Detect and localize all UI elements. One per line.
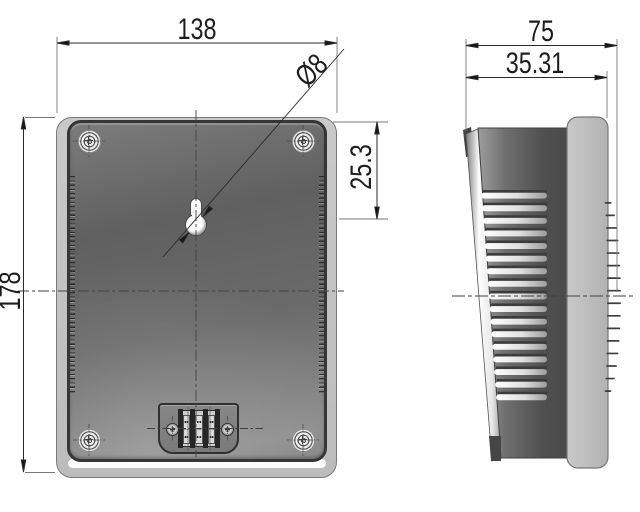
vent-slot-louver	[494, 369, 547, 375]
vent-slot-opening	[495, 354, 547, 357]
vent-slot-opening	[498, 392, 547, 395]
grille-hatch-dash	[607, 315, 621, 317]
vent-slot-opening	[489, 278, 547, 281]
vent-slot-louver	[486, 256, 547, 262]
dim-text-side-depth-body: 35.31	[500, 51, 570, 77]
vent-slot-louver	[493, 357, 547, 363]
vent-slot-opening	[493, 329, 547, 332]
vent-slot-louver	[492, 344, 547, 350]
vent-slot-opening	[486, 240, 547, 243]
vent-slot-louver	[495, 382, 547, 388]
grille-hatch-dash	[607, 265, 620, 267]
grille-hatch-dash	[606, 365, 617, 367]
grille-hatch-dash	[607, 252, 620, 254]
grille-hatch-dash	[606, 227, 617, 229]
vent-slot-opening	[491, 303, 547, 306]
grille-hatch-dash	[607, 340, 620, 342]
dim-text-back-height: 178	[0, 252, 24, 330]
vent-slot-louver	[496, 394, 547, 400]
grille-hatch-dash	[607, 290, 621, 292]
vent-slot-opening	[490, 291, 547, 294]
side-mounting-flange	[567, 117, 608, 468]
vent-slot-opening	[487, 253, 547, 256]
dim-text-keyhole-offset: 25.3	[349, 128, 375, 206]
grille-hatch-dash	[605, 202, 612, 204]
vent-slot-opening	[483, 190, 548, 193]
vent-slot-opening	[494, 341, 547, 344]
vent-slot-opening	[497, 379, 547, 382]
vent-slot-opening	[488, 266, 547, 269]
grille-hatch-dash	[607, 328, 620, 330]
vent-slot-louver	[491, 319, 548, 325]
side-view	[463, 117, 621, 468]
vent-slot-louver	[489, 294, 547, 300]
vent-slot-opening	[483, 203, 547, 206]
grille-hatch-dash	[607, 302, 621, 304]
vent-slot-louver	[481, 193, 547, 199]
vent-slot-louver	[483, 218, 547, 224]
grille-hatch-dash	[606, 215, 615, 217]
vent-slot-opening	[485, 228, 547, 231]
vent-slot-louver	[490, 306, 547, 312]
vent-slot-louver	[488, 281, 547, 287]
grille-hatch-dash	[606, 378, 615, 380]
grille-hatch-dash	[606, 353, 618, 355]
drawing-canvas: 138 178 25.3 Ø8 75 35.31	[0, 0, 640, 512]
vent-slot-louver	[487, 268, 547, 274]
vent-slot-opening	[492, 316, 547, 319]
side-bottom-foot	[489, 436, 501, 461]
dim-text-side-depth-total: 75	[510, 19, 572, 45]
vent-slot-louver	[491, 331, 547, 337]
vent-slot-louver	[484, 231, 547, 237]
vent-slot-louver	[482, 205, 547, 211]
vent-slot-louver	[485, 243, 547, 249]
dim-text-back-width: 138	[158, 17, 236, 43]
vent-slot-opening	[484, 215, 547, 218]
vent-slot-opening	[496, 366, 547, 369]
grille-hatch-dash	[607, 277, 621, 279]
grille-hatch-dash	[605, 390, 612, 392]
